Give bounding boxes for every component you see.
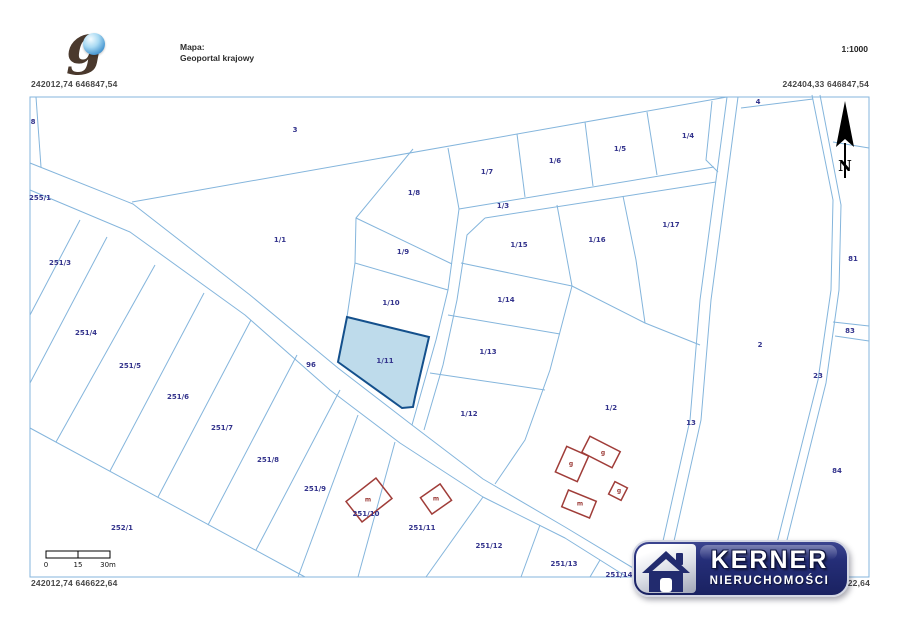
parcel-label: 255/1 xyxy=(29,194,51,202)
buildings xyxy=(346,436,627,522)
parcel-label: 251/14 xyxy=(606,571,633,579)
house-icon xyxy=(638,546,694,595)
scalebar-tick-0: 0 xyxy=(44,561,48,569)
kerner-text: KERNER NIERUCHOMOŚCI xyxy=(698,547,841,588)
parcel-label: 251/8 xyxy=(257,456,279,464)
parcel-label: 1/16 xyxy=(588,236,605,244)
parcel-label: 8 xyxy=(31,118,36,126)
parcel-boundaries xyxy=(30,95,869,577)
kerner-subtitle: NIERUCHOMOŚCI xyxy=(698,574,841,588)
globe-icon xyxy=(83,33,105,55)
building-label: m xyxy=(433,496,439,503)
parcel-label: 2 xyxy=(758,341,763,349)
parcel-label: 1/1 xyxy=(274,236,286,244)
scalebar-tick-30m: 30m xyxy=(100,561,116,569)
parcel-label: 1/3 xyxy=(497,202,509,210)
parcel-label: 81 xyxy=(848,255,858,263)
parcel-label: 1/5 xyxy=(614,145,626,153)
parcel-label: 251/4 xyxy=(75,329,97,337)
parcel-label: 96 xyxy=(306,361,316,369)
parcel-label: 251/6 xyxy=(167,393,189,401)
parcel-label: 1/7 xyxy=(481,168,493,176)
parcel-label: 23 xyxy=(813,372,823,380)
parcel-label: 13 xyxy=(686,419,696,427)
parcel-label: 3 xyxy=(293,126,298,134)
building-label: g xyxy=(601,450,605,457)
map-source-name: Geoportal krajowy xyxy=(180,53,254,64)
kerner-brand: KERNER xyxy=(698,547,841,573)
parcel-label: 83 xyxy=(845,327,855,335)
coordinate-top-left: 242012,74 646847,54 xyxy=(31,79,118,89)
parcel-label: 1/4 xyxy=(682,132,694,140)
parcel-label: 84 xyxy=(832,467,842,475)
parcel-label: 1/14 xyxy=(497,296,514,304)
parcel-label: 1/2 xyxy=(605,404,617,412)
scale-bar xyxy=(46,551,110,558)
parcel-label: 251/3 xyxy=(49,259,71,267)
building-label: m xyxy=(365,497,371,504)
parcel-label: 251/10 xyxy=(353,510,380,518)
building-label: m xyxy=(577,501,583,508)
kerner-logo-cap xyxy=(636,544,696,593)
parcel-label: 251/5 xyxy=(119,362,141,370)
parcel-label: 252/1 xyxy=(111,524,133,532)
parcel-label: 1/9 xyxy=(397,248,409,256)
parcel-label: 1/15 xyxy=(510,241,527,249)
map-source: Mapa: Geoportal krajowy xyxy=(180,42,254,64)
building-label: g xyxy=(617,488,621,495)
parcel-label: 251/9 xyxy=(304,485,326,493)
parcel-label: 251/7 xyxy=(211,424,233,432)
map-scale: 1:1000 xyxy=(842,44,868,54)
parcel-label: 1/10 xyxy=(382,299,399,307)
parcel-label: 1/11 xyxy=(376,357,393,365)
map-source-label: Mapa: xyxy=(180,42,254,53)
parcel-label: 4 xyxy=(756,98,761,106)
parcel-label: 1/13 xyxy=(479,348,496,356)
parcel-label: 251/13 xyxy=(551,560,578,568)
parcel-label: 1/17 xyxy=(662,221,679,229)
scalebar-tick-15: 15 xyxy=(74,561,83,569)
parcel-label: 1/6 xyxy=(549,157,561,165)
geoportal-logo: g xyxy=(64,28,136,84)
coordinate-top-right: 242404,33 646847,54 xyxy=(782,79,869,89)
parcel-label: 1/8 xyxy=(408,189,420,197)
parcel-label: 1/12 xyxy=(460,410,477,418)
building-label: g xyxy=(569,461,573,468)
map-report-page: 8255/131/1251/3251/4251/5251/6251/7251/8… xyxy=(0,0,900,636)
coordinate-bottom-left: 242012,74 646622,64 xyxy=(31,578,118,588)
parcel-label: 251/12 xyxy=(476,542,503,550)
parcel-label: 251/11 xyxy=(409,524,436,532)
north-letter: N xyxy=(838,157,852,175)
kerner-watermark: KERNER NIERUCHOMOŚCI xyxy=(632,540,849,597)
